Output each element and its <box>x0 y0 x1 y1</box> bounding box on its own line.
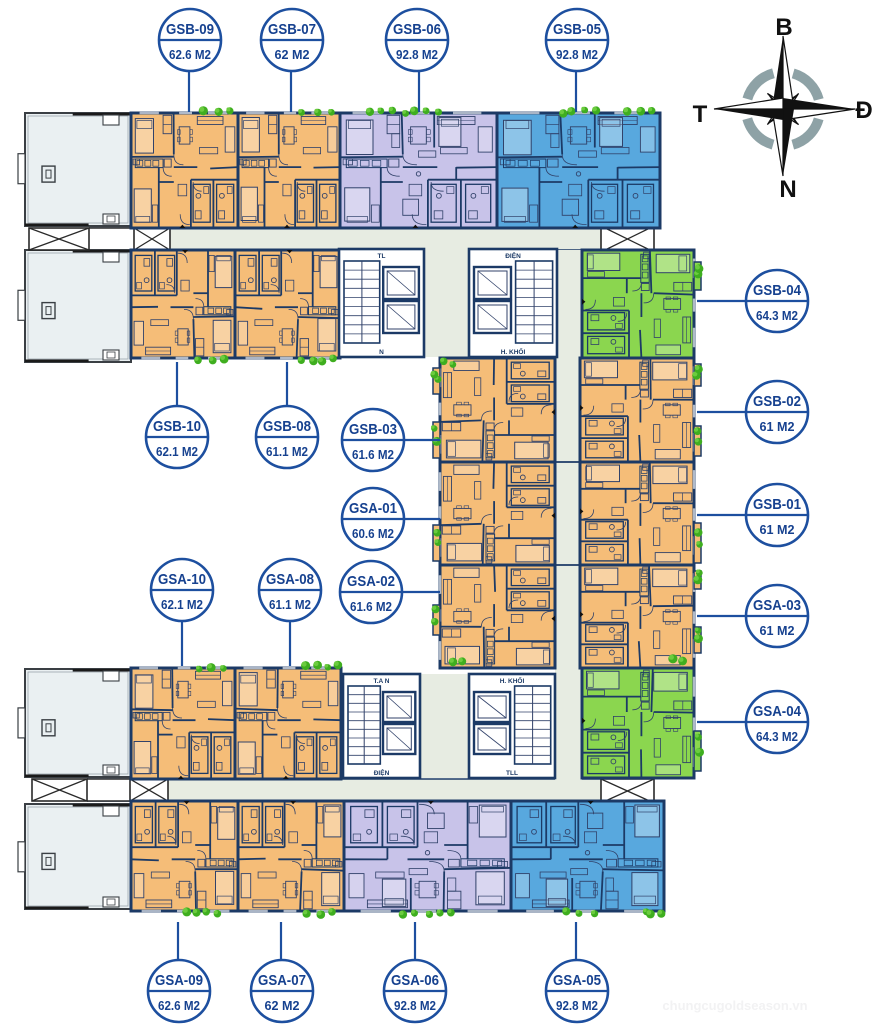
svg-text:T.A N: T.A N <box>373 678 389 685</box>
svg-text:TL: TL <box>378 253 386 260</box>
svg-text:T: T <box>693 101 708 128</box>
svg-text:61 M2: 61 M2 <box>760 522 795 537</box>
svg-text:B: B <box>775 14 792 41</box>
svg-text:GSA-10: GSA-10 <box>158 571 206 588</box>
svg-text:GSA-06: GSA-06 <box>391 972 439 989</box>
svg-text:92.8 M2: 92.8 M2 <box>556 998 598 1013</box>
svg-text:chungcugoldseason.vn: chungcugoldseason.vn <box>662 998 807 1013</box>
svg-text:61.6 M2: 61.6 M2 <box>350 599 392 614</box>
svg-text:62 M2: 62 M2 <box>265 998 300 1013</box>
svg-text:Đ: Đ <box>855 97 872 124</box>
svg-text:61 M2: 61 M2 <box>760 623 795 638</box>
svg-text:GSB-07: GSB-07 <box>268 21 316 38</box>
svg-text:GSA-09: GSA-09 <box>155 972 203 989</box>
svg-text:ĐIỆN: ĐIỆN <box>505 251 521 260</box>
svg-text:GSB-08: GSB-08 <box>263 418 311 435</box>
svg-text:GSB-01: GSB-01 <box>753 496 801 513</box>
svg-text:GSB-04: GSB-04 <box>753 282 802 299</box>
svg-text:62.1 M2: 62.1 M2 <box>156 444 198 459</box>
svg-text:GSA-08: GSA-08 <box>266 571 314 588</box>
svg-text:GSA-04: GSA-04 <box>753 703 802 720</box>
svg-text:GSB-09: GSB-09 <box>166 21 214 38</box>
svg-text:61 M2: 61 M2 <box>760 419 795 434</box>
svg-text:GSA-05: GSA-05 <box>553 972 601 989</box>
svg-text:62.6 M2: 62.6 M2 <box>158 998 200 1013</box>
svg-text:92.8 M2: 92.8 M2 <box>396 47 438 62</box>
svg-text:GSA-03: GSA-03 <box>753 597 801 614</box>
svg-text:GSA-01: GSA-01 <box>349 500 397 517</box>
svg-text:92.8 M2: 92.8 M2 <box>556 47 598 62</box>
svg-text:61.1 M2: 61.1 M2 <box>269 597 311 612</box>
svg-text:64.3 M2: 64.3 M2 <box>756 308 798 323</box>
svg-text:61.6 M2: 61.6 M2 <box>352 447 394 462</box>
svg-text:64.3 M2: 64.3 M2 <box>756 729 798 744</box>
svg-text:TLL: TLL <box>506 770 518 777</box>
svg-text:GSB-02: GSB-02 <box>753 393 801 410</box>
svg-text:N: N <box>779 176 796 203</box>
svg-text:GSB-06: GSB-06 <box>393 21 441 38</box>
svg-text:GSB-10: GSB-10 <box>153 418 201 435</box>
svg-text:ĐIỆN: ĐIỆN <box>374 768 390 777</box>
svg-text:N: N <box>379 349 384 356</box>
svg-text:GSB-03: GSB-03 <box>349 421 397 438</box>
svg-text:62.1 M2: 62.1 M2 <box>161 597 203 612</box>
svg-text:60.6 M2: 60.6 M2 <box>352 526 394 541</box>
svg-text:92.8 M2: 92.8 M2 <box>394 998 436 1013</box>
svg-text:GSA-07: GSA-07 <box>258 972 306 989</box>
svg-text:62 M2: 62 M2 <box>275 47 310 62</box>
svg-text:GSA-02: GSA-02 <box>347 573 395 590</box>
svg-text:GSB-05: GSB-05 <box>553 21 601 38</box>
svg-text:62.6 M2: 62.6 M2 <box>169 47 211 62</box>
svg-text:61.1 M2: 61.1 M2 <box>266 444 308 459</box>
